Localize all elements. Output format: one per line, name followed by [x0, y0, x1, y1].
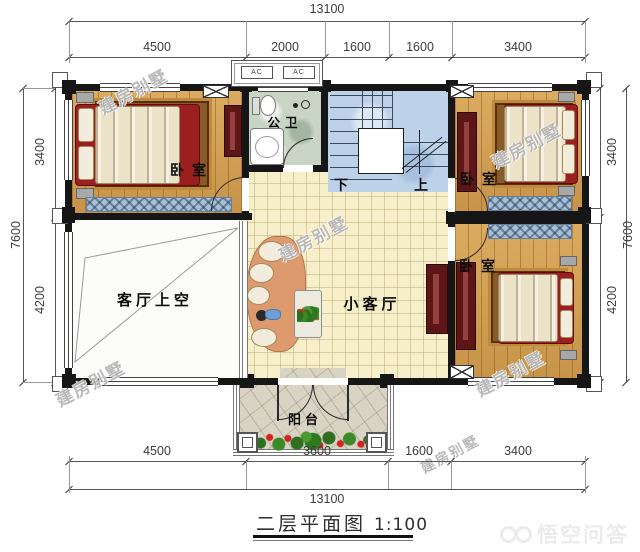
window-seat-curtain	[488, 224, 572, 239]
bed-pillow	[560, 310, 573, 338]
logo-text: 悟空问答	[537, 519, 629, 549]
stair-step-line	[372, 91, 373, 128]
wardrobe-handle	[230, 112, 235, 150]
dim-bottom-seg: 3600	[290, 444, 344, 458]
dim-ext	[69, 21, 70, 63]
caption-underline-thin	[253, 540, 413, 541]
dim-bottom-seg: 1600	[392, 444, 446, 458]
door-opening	[278, 378, 348, 385]
caption-title: 二层平面图	[256, 513, 366, 535]
column	[577, 80, 591, 94]
bed-pillow	[78, 146, 94, 180]
dim-ext	[23, 382, 55, 383]
dim-ext	[69, 456, 70, 493]
nightstand	[76, 92, 94, 103]
column	[62, 207, 75, 223]
wall	[65, 213, 252, 220]
table-flowers	[297, 306, 319, 322]
label-stair-down: 下	[331, 175, 351, 195]
floor-plan-canvas: 13100 4500 2000 1600 1600 3400 7600 3400…	[0, 0, 640, 552]
stair-void-box	[358, 128, 404, 174]
dim-line	[55, 88, 56, 382]
stair-step-line	[330, 167, 358, 168]
stair-step-line	[330, 131, 358, 132]
window-seat-curtain	[488, 196, 572, 211]
shower-head	[301, 100, 310, 109]
dim-top-total: 13100	[300, 2, 354, 16]
window	[64, 232, 73, 368]
site-logo: 悟空问答	[500, 519, 629, 549]
label-living-void: 客厅上空	[105, 289, 205, 310]
dim-line	[600, 88, 601, 382]
label-bathroom: 公卫	[257, 112, 313, 131]
dim-bottom-total: 13100	[300, 492, 354, 506]
sofa-cushion	[249, 263, 274, 283]
dim-bottom-seg: 3400	[491, 444, 545, 458]
dim-ext	[585, 456, 586, 493]
bed-duvet	[498, 274, 558, 342]
dim-ext	[246, 21, 247, 57]
dim-left-total: 7600	[9, 215, 23, 255]
dim-line	[69, 21, 585, 22]
bed-pillow	[78, 108, 94, 142]
logo-glasses-icon	[515, 526, 532, 543]
dim-line	[69, 489, 585, 490]
stair-step-line	[392, 91, 393, 128]
wall	[446, 211, 589, 224]
tv-screen	[433, 274, 439, 324]
dim-line	[69, 461, 585, 462]
shaft-box	[450, 85, 474, 98]
nightstand	[560, 256, 577, 266]
column	[577, 374, 591, 388]
nightstand	[558, 92, 575, 102]
dim-ext	[585, 21, 586, 63]
dim-top-seg: 3400	[491, 40, 545, 54]
dim-top-seg: 2000	[258, 40, 312, 54]
label-balcony: 阳台	[265, 409, 345, 428]
wall	[321, 84, 328, 172]
dim-bottom-seg: 4500	[130, 444, 184, 458]
shaft-box	[450, 365, 474, 379]
label-bedroom-top-right: 卧室	[447, 169, 517, 189]
nightstand	[558, 186, 575, 196]
dim-ext	[23, 88, 55, 89]
person-body	[265, 309, 281, 320]
column	[62, 80, 76, 94]
column	[578, 207, 591, 223]
bed-pillow	[562, 144, 575, 174]
drawing-caption: 二层平面图1:100	[256, 509, 428, 536]
dim-ext	[451, 461, 452, 489]
door-leaf	[347, 385, 349, 421]
label-bedroom-bottom-right: 卧室	[446, 256, 516, 276]
dim-line	[69, 57, 585, 58]
dim-line	[23, 88, 24, 382]
caption-scale: 1:100	[374, 515, 428, 535]
balcony-column	[237, 432, 258, 453]
wardrobe-handle	[463, 272, 468, 340]
shaft-box	[203, 85, 229, 98]
dim-right-seg: 4200	[605, 280, 619, 320]
nightstand	[560, 350, 577, 360]
dim-left-seg: 3400	[33, 132, 47, 172]
window	[581, 100, 590, 176]
dim-left-seg: 4200	[33, 280, 47, 320]
label-stair-up: 上	[411, 175, 431, 195]
dim-right-seg: 3400	[605, 132, 619, 172]
dim-ext	[452, 21, 453, 57]
void-railing	[239, 221, 248, 378]
stair-step-line	[330, 155, 358, 156]
stair-direction-line	[419, 130, 420, 174]
dim-ext	[246, 461, 247, 489]
balcony-column	[366, 432, 387, 453]
balcony-column-inner	[242, 437, 253, 448]
sofa-cushion	[247, 286, 270, 305]
dim-ext	[325, 21, 326, 57]
dim-top-seg: 4500	[130, 40, 184, 54]
dim-ext	[388, 461, 389, 489]
label-small-living: 小客厅	[322, 293, 422, 314]
dim-top-seg: 1600	[330, 40, 384, 54]
dim-right-total: 7600	[621, 215, 635, 255]
window	[468, 83, 552, 92]
label-bedroom-top-left: 卧室	[157, 160, 227, 180]
dim-ext	[389, 21, 390, 57]
stair-step-line	[382, 91, 383, 128]
caption-underline-thick	[253, 535, 413, 538]
ac-unit: AC	[241, 66, 273, 79]
ac-unit: AC	[283, 66, 315, 79]
shower-dot	[293, 103, 298, 108]
stair-step-line	[330, 143, 358, 144]
sofa-cushion	[251, 328, 277, 347]
balcony-column-inner	[371, 437, 382, 448]
window	[64, 100, 73, 180]
stair-step-line	[362, 91, 363, 128]
sink-basin	[255, 136, 279, 158]
dim-top-seg: 1600	[393, 40, 447, 54]
bed-pillow	[560, 278, 573, 306]
